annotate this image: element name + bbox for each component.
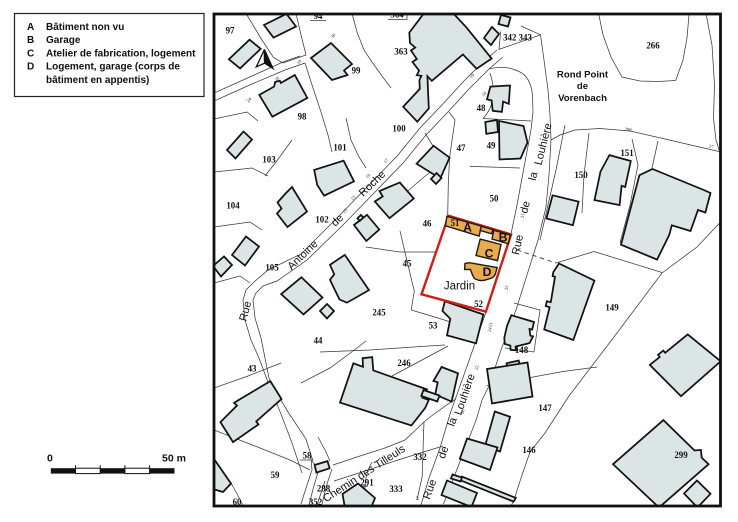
svg-text:58: 58	[303, 451, 312, 461]
svg-text:19: 19	[469, 72, 476, 79]
svg-text:44: 44	[314, 336, 323, 346]
svg-text:30: 30	[330, 32, 337, 39]
svg-text:46: 46	[423, 219, 432, 229]
svg-text:45: 45	[403, 259, 412, 269]
svg-text:15: 15	[342, 207, 349, 214]
svg-text:47: 47	[457, 143, 466, 153]
svg-text:de: de	[577, 81, 588, 92]
svg-text:A: A	[463, 221, 472, 235]
svg-text:100: 100	[392, 124, 406, 134]
svg-text:B: B	[27, 35, 34, 46]
svg-text:bâtiment en appentis): bâtiment en appentis)	[46, 75, 149, 86]
svg-text:101: 101	[333, 143, 346, 153]
svg-text:299: 299	[674, 450, 688, 460]
svg-text:Jardin: Jardin	[444, 281, 475, 293]
svg-text:Atelier de fabrication, logeme: Atelier de fabrication, logement	[46, 48, 196, 59]
svg-text:13: 13	[350, 194, 357, 201]
svg-text:17: 17	[383, 157, 390, 164]
svg-text:105: 105	[265, 263, 279, 273]
svg-text:D: D	[27, 62, 34, 73]
svg-text:22: 22	[474, 364, 480, 370]
svg-text:Rue: Rue	[421, 478, 439, 501]
svg-text:27: 27	[709, 144, 715, 150]
svg-text:25: 25	[504, 284, 510, 290]
svg-text:151: 151	[620, 148, 633, 158]
svg-text:B: B	[499, 231, 508, 245]
svg-text:50 m: 50 m	[162, 453, 186, 465]
svg-text:la: la	[527, 170, 541, 182]
svg-text:333: 333	[389, 484, 403, 494]
svg-text:148: 148	[515, 345, 529, 355]
svg-text:52: 52	[474, 299, 483, 309]
svg-text:C: C	[27, 48, 34, 59]
svg-text:332: 332	[413, 452, 427, 462]
svg-text:0: 0	[47, 453, 53, 465]
svg-text:103: 103	[262, 155, 276, 165]
svg-text:Louhière: Louhière	[533, 122, 555, 166]
svg-text:147: 147	[538, 403, 552, 413]
svg-text:Antoine: Antoine	[285, 238, 320, 273]
svg-text:149: 149	[605, 303, 619, 313]
svg-text:246: 246	[397, 358, 411, 368]
svg-text:51: 51	[451, 218, 460, 228]
svg-text:C: C	[485, 247, 494, 261]
svg-text:150: 150	[574, 170, 588, 180]
svg-text:342 343: 342 343	[503, 33, 532, 43]
svg-text:10: 10	[481, 90, 488, 97]
svg-text:de: de	[518, 200, 533, 215]
svg-text:102: 102	[315, 215, 329, 225]
svg-text:245: 245	[372, 308, 386, 318]
svg-text:21: 21	[488, 321, 494, 327]
svg-text:Rue: Rue	[237, 300, 254, 323]
svg-text:99: 99	[352, 66, 361, 76]
svg-text:94: 94	[314, 11, 323, 21]
svg-text:Bâtiment non vu: Bâtiment non vu	[46, 22, 124, 33]
svg-text:A: A	[27, 22, 34, 33]
svg-text:97: 97	[226, 26, 235, 36]
svg-text:104: 104	[226, 201, 240, 211]
svg-text:49: 49	[487, 141, 496, 151]
svg-text:266: 266	[646, 41, 660, 51]
svg-text:146: 146	[522, 445, 536, 455]
svg-text:59: 59	[271, 470, 280, 480]
svg-text:D: D	[483, 265, 492, 279]
svg-text:48: 48	[477, 103, 486, 113]
svg-text:43: 43	[248, 364, 257, 374]
svg-text:de: de	[436, 445, 451, 461]
svg-text:363: 363	[394, 47, 408, 57]
svg-text:50: 50	[490, 194, 499, 204]
svg-text:Rue: Rue	[510, 234, 526, 256]
svg-text:Logement, garage (corps de: Logement, garage (corps de	[46, 62, 180, 73]
svg-text:24: 24	[246, 96, 253, 103]
svg-text:Garage: Garage	[46, 35, 81, 46]
svg-text:98: 98	[298, 112, 307, 122]
svg-text:53: 53	[429, 321, 438, 331]
svg-text:la: la	[446, 415, 461, 428]
svg-text:Rond Point: Rond Point	[557, 70, 609, 81]
svg-text:Vorenbach: Vorenbach	[558, 93, 607, 104]
svg-text:de: de	[329, 212, 346, 229]
